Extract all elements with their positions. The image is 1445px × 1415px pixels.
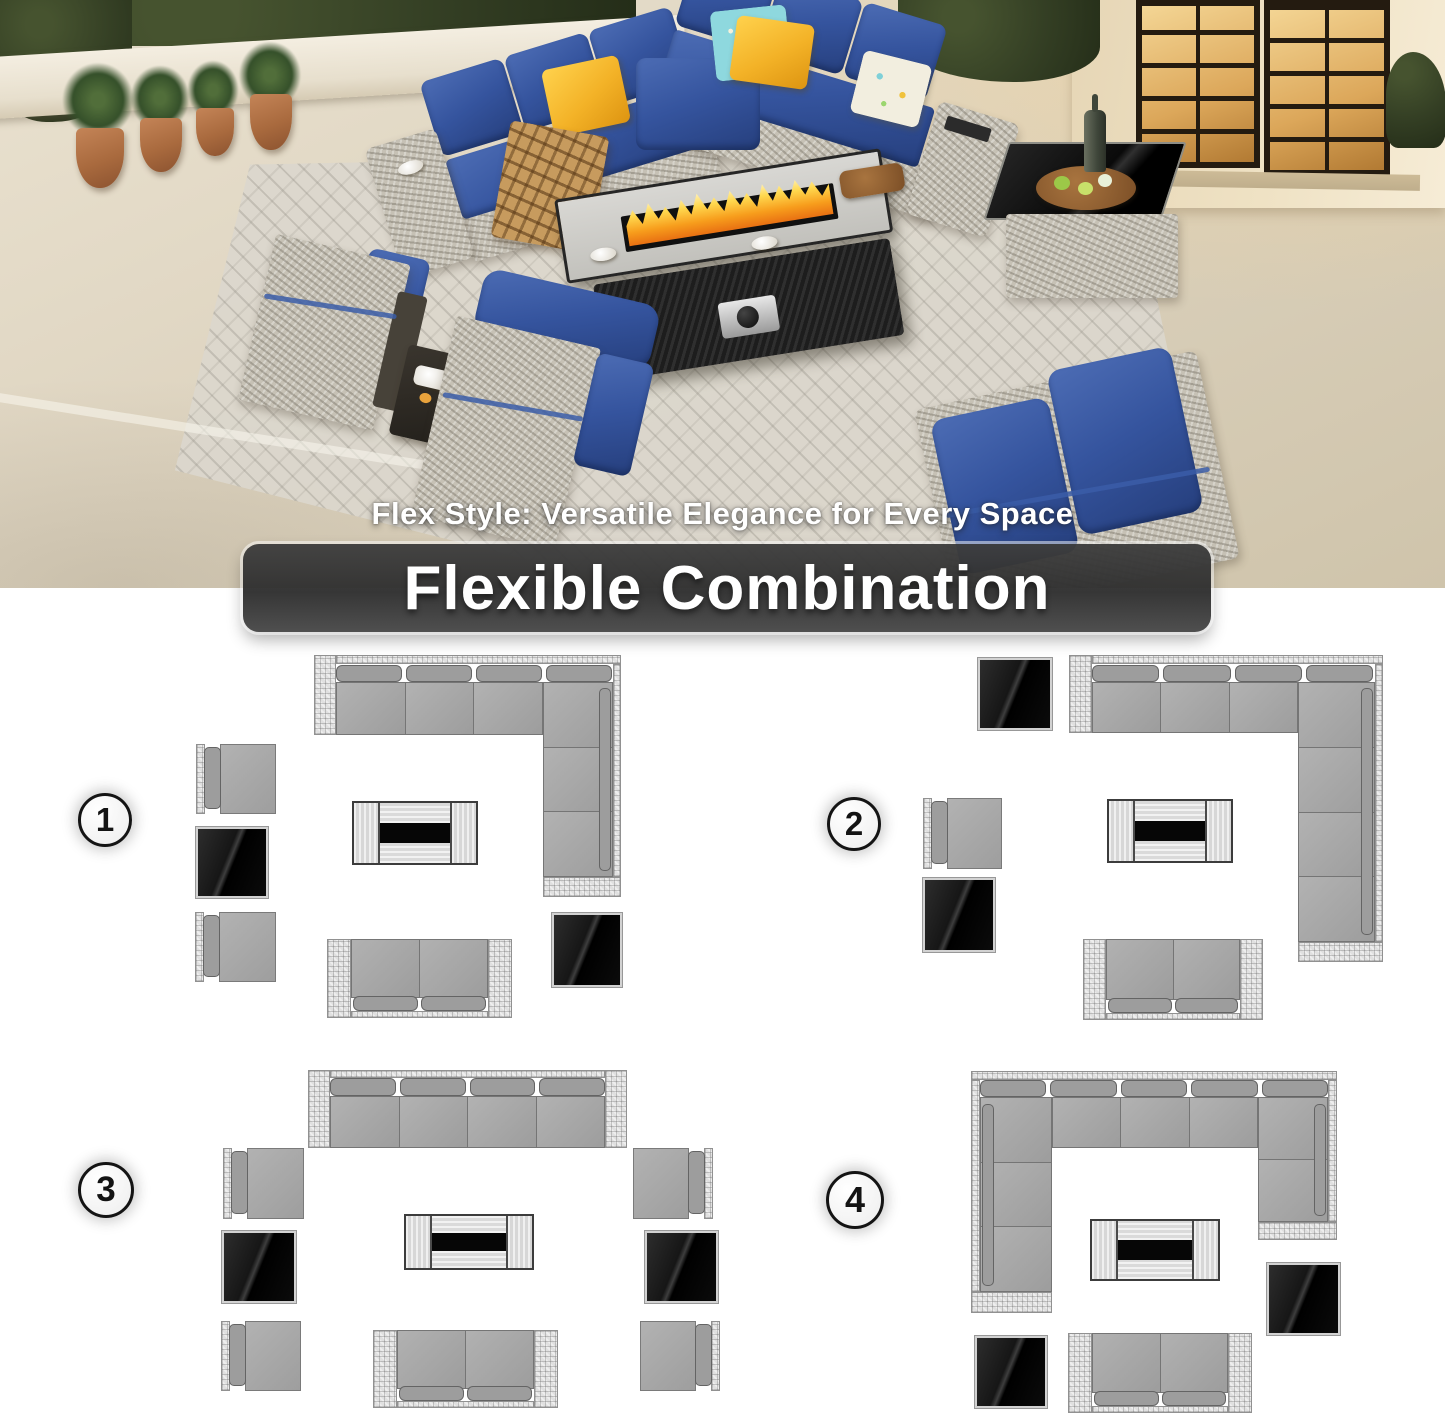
- layout-4-fire-pit-table-burner: [1118, 1240, 1191, 1260]
- layout-1-fire-pit-table-wood-side: [450, 803, 476, 863]
- layout-3-armchair-right-top-back-cushion: [688, 1151, 705, 1214]
- layout-4-u-sectional-back-cushion: [1314, 1104, 1326, 1216]
- layout-2-side-table-top: [978, 658, 1052, 730]
- layout-2-corner-sectional-back-cushion: [1361, 688, 1373, 935]
- layout-1-fire-pit-table-wood-panel: [380, 803, 451, 823]
- layout-4-u-sectional-wicker-frame: [971, 1071, 1337, 1080]
- layout-2-fire-pit-table-wood-side: [1109, 801, 1135, 861]
- layout-2-side-table-bottom: [923, 878, 995, 952]
- layout-3-armchair-right-bottom-seat: [640, 1321, 696, 1391]
- layout-2-fire-pit-table-wood-panel: [1135, 801, 1206, 821]
- layout-3-loveseat-back-cushions: [399, 1386, 532, 1401]
- layout-1-loveseat-seats: [351, 939, 488, 998]
- layout-4-u-sectional-back-cushion: [982, 1104, 994, 1286]
- layout-4-loveseat-wicker-frame: [1092, 1406, 1228, 1413]
- layout-2-loveseat: [1083, 939, 1263, 1020]
- layout-3-loveseat-wicker-arm: [534, 1330, 558, 1408]
- layout-3-armchair-left-top: [223, 1148, 304, 1219]
- layout-1-loveseat-wicker-frame: [351, 1011, 488, 1018]
- layout-3-armchair-right-bottom-back-cushion: [695, 1324, 712, 1386]
- layout-2-corner-sectional-wicker-frame: [1092, 655, 1383, 664]
- layout-2-loveseat-wicker-frame: [1106, 1013, 1239, 1020]
- layout-4-loveseat-wicker-arm: [1228, 1333, 1252, 1413]
- layout-2-loveseat-back-cushions: [1108, 998, 1238, 1013]
- layout-4-u-sectional-wicker-frame: [1258, 1222, 1337, 1240]
- layout-3-armchair-left-top-back-cushion: [231, 1151, 248, 1214]
- layout-3-armchair-left-bottom-back-cushion: [229, 1324, 246, 1386]
- layout-1-loveseat-wicker-arm: [488, 939, 512, 1018]
- layout-1-fire-pit-table: [352, 801, 478, 865]
- layout-4-u-sectional-back-cushions: [980, 1080, 1328, 1097]
- layout-2-corner-sectional-wicker-frame: [1069, 655, 1092, 733]
- layout-1-armchair-bottom-seat: [219, 912, 276, 982]
- layout-3-four-seat-sofa-seats: [330, 1096, 605, 1148]
- layout-1-loveseat-wicker-arm: [327, 939, 351, 1018]
- layout-1-loveseat: [327, 939, 512, 1018]
- layout-4-side-table-right: [1267, 1263, 1340, 1335]
- layout-3-four-seat-sofa-back-cushions: [330, 1078, 605, 1096]
- layout-4-loveseat-wicker-arm: [1068, 1333, 1092, 1413]
- layout-3-badge: 3: [78, 1162, 134, 1218]
- layout-4-loveseat-seats: [1092, 1333, 1228, 1393]
- layout-3-armchair-left-bottom: [221, 1321, 301, 1391]
- layout-2-loveseat-wicker-arm: [1240, 939, 1263, 1020]
- layout-3-fire-pit-table-wood-side: [506, 1216, 532, 1268]
- layout-2-fire-pit-table-wood-side: [1205, 801, 1231, 861]
- layout-4-u-sectional-wicker-frame: [971, 1080, 980, 1292]
- layout-4-loveseat: [1068, 1333, 1252, 1413]
- layout-3-armchair-right-top: [633, 1148, 713, 1219]
- layout-2-fire-pit-table: [1107, 799, 1233, 863]
- layout-3-side-table-right: [645, 1231, 718, 1303]
- layout-2-armchair-seat: [947, 798, 1002, 869]
- layout-3-four-seat-sofa-wicker-frame: [308, 1070, 330, 1148]
- layout-4-fire-pit-table-wood-panel: [1118, 1221, 1191, 1240]
- layout-4-u-sectional-wicker-frame: [1328, 1080, 1337, 1222]
- layout-3-armchair-right-top-wicker-frame: [704, 1148, 713, 1219]
- layout-3-fire-pit-table: [404, 1214, 534, 1270]
- layout-3-fire-pit-table-wood-panel: [432, 1216, 505, 1233]
- layout-1-corner-sectional-back-cushions: [336, 665, 612, 682]
- layout-2-loveseat-wicker-arm: [1083, 939, 1106, 1020]
- layout-4-side-table-bottom: [975, 1336, 1047, 1408]
- hero-tagline: Flex Style: Versatile Elegance for Every…: [0, 496, 1445, 532]
- layout-1-corner-sectional-wicker-frame: [314, 655, 336, 735]
- layout-1-armchair-top-back-cushion: [204, 747, 221, 809]
- layout-1-side-table-right: [552, 913, 622, 987]
- layout-4-u-sectional-wicker-frame: [971, 1292, 1052, 1313]
- layout-3-loveseat-wicker-arm: [373, 1330, 397, 1408]
- layout-3-armchair-left-top-seat: [247, 1148, 304, 1219]
- layout-3-armchair-right-bottom: [640, 1321, 720, 1391]
- layout-2-corner-sectional-wicker-frame: [1375, 664, 1383, 942]
- layout-4-fire-pit-table-wood-panel: [1118, 1260, 1191, 1279]
- layout-4-fire-pit-table-center: [1118, 1221, 1191, 1279]
- layout-1-fire-pit-table-wood-side: [354, 803, 380, 863]
- flexible-combination-banner: Flexible Combination: [243, 544, 1211, 632]
- layout-4-badge: 4: [826, 1171, 884, 1229]
- layout-3-loveseat-wicker-frame: [397, 1401, 534, 1408]
- layout-2-armchair: [923, 798, 1002, 869]
- layout-3-fire-pit-table-wood-side: [406, 1216, 432, 1268]
- layout-4-fire-pit-table-wood-side: [1092, 1221, 1118, 1279]
- layout-1-corner-sectional-back-cushion: [599, 688, 611, 871]
- layout-1-corner-sectional-wicker-frame: [613, 664, 621, 877]
- layout-1-fire-pit-table-wood-panel: [380, 843, 451, 863]
- layout-3-armchair-right-bottom-wicker-frame: [711, 1321, 720, 1391]
- layout-3-fire-pit-table-center: [432, 1216, 505, 1268]
- layout-1-fire-pit-table-burner: [380, 823, 451, 843]
- layout-1-loveseat-back-cushions: [353, 996, 486, 1011]
- layout-2-fire-pit-table-wood-panel: [1135, 841, 1206, 861]
- layout-1-side-table-left: [196, 827, 268, 898]
- layout-4-u-sectional-seats: [1052, 1097, 1258, 1148]
- layout-4-loveseat-back-cushions: [1094, 1391, 1227, 1406]
- layout-3-fire-pit-table-burner: [432, 1233, 505, 1251]
- layout-2-badge: 2: [827, 797, 881, 851]
- layout-1-fire-pit-table-center: [380, 803, 451, 863]
- layout-2-corner-sectional-wicker-frame: [1298, 942, 1383, 962]
- layout-1-armchair-bottom-back-cushion: [203, 915, 220, 977]
- layout-2-loveseat-seats: [1106, 939, 1239, 1000]
- layout-3-armchair-right-top-seat: [633, 1148, 689, 1219]
- layout-2-armchair-back-cushion: [931, 801, 948, 864]
- layout-3-loveseat: [373, 1330, 558, 1408]
- layout-1-corner-sectional-wicker-frame: [336, 655, 621, 664]
- layout-3-side-table-left: [222, 1231, 296, 1303]
- layout-4-fire-pit-table-wood-side: [1192, 1221, 1218, 1279]
- layout-3-four-seat-sofa-wicker-frame: [330, 1070, 605, 1078]
- layout-4-fire-pit-table: [1090, 1219, 1220, 1281]
- layout-1-corner-sectional-wicker-frame: [543, 877, 621, 897]
- layout-2-corner-sectional-back-cushions: [1092, 665, 1373, 682]
- layout-1-badge: 1: [78, 793, 132, 847]
- layout-1-corner-sectional-seats: [336, 682, 543, 735]
- layout-diagrams: 1234: [0, 0, 1445, 1415]
- layout-3-armchair-left-bottom-seat: [245, 1321, 301, 1391]
- layout-2-fire-pit-table-center: [1135, 801, 1206, 861]
- banner-title: Flexible Combination: [404, 553, 1051, 624]
- layout-2-corner-sectional-seats: [1092, 682, 1298, 733]
- layout-3-loveseat-seats: [397, 1330, 534, 1389]
- layout-3-fire-pit-table-wood-panel: [432, 1251, 505, 1268]
- layout-3-four-seat-sofa-wicker-frame: [605, 1070, 627, 1148]
- layout-1-armchair-top: [196, 744, 276, 814]
- layout-1-armchair-top-seat: [220, 744, 276, 814]
- layout-2-fire-pit-table-burner: [1135, 821, 1206, 841]
- layout-1-armchair-bottom: [195, 912, 276, 982]
